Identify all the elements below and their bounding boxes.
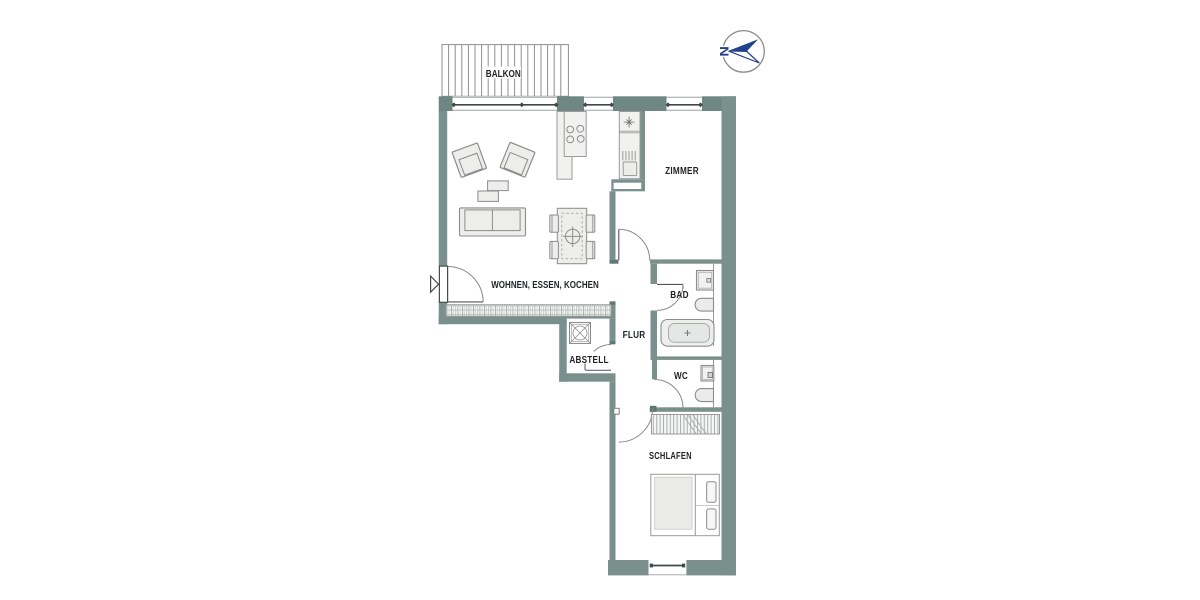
svg-text:BALKON: BALKON (486, 67, 521, 79)
svg-text:WC: WC (674, 369, 688, 381)
svg-text:BAD: BAD (670, 288, 688, 300)
svg-text:ZIMMER: ZIMMER (665, 164, 699, 176)
svg-text:WOHNEN, ESSEN, KOCHEN: WOHNEN, ESSEN, KOCHEN (491, 279, 599, 290)
svg-text:SCHLAFEN: SCHLAFEN (649, 450, 692, 461)
svg-text:N: N (717, 46, 731, 56)
svg-text:FLUR: FLUR (623, 328, 646, 340)
svg-text:ABSTELL: ABSTELL (569, 353, 608, 365)
